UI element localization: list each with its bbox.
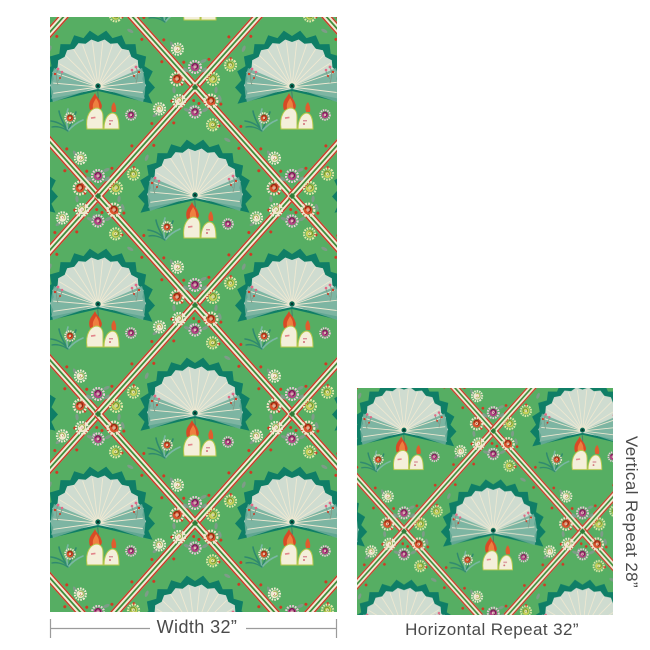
wallpaper-spec-graphic bbox=[0, 0, 650, 650]
width-label: Width 32” bbox=[137, 617, 257, 638]
horizontal-repeat-label: Horizontal Repeat 32” bbox=[382, 620, 602, 640]
wallpaper-spec-sheet: Width 32” Horizontal Repeat 32” Vertical… bbox=[0, 0, 650, 650]
wallpaper-roll-swatch bbox=[50, 17, 337, 612]
vertical-repeat-label: Vertical Repeat 28” bbox=[621, 402, 641, 622]
repeat-tile-swatch bbox=[357, 388, 613, 615]
